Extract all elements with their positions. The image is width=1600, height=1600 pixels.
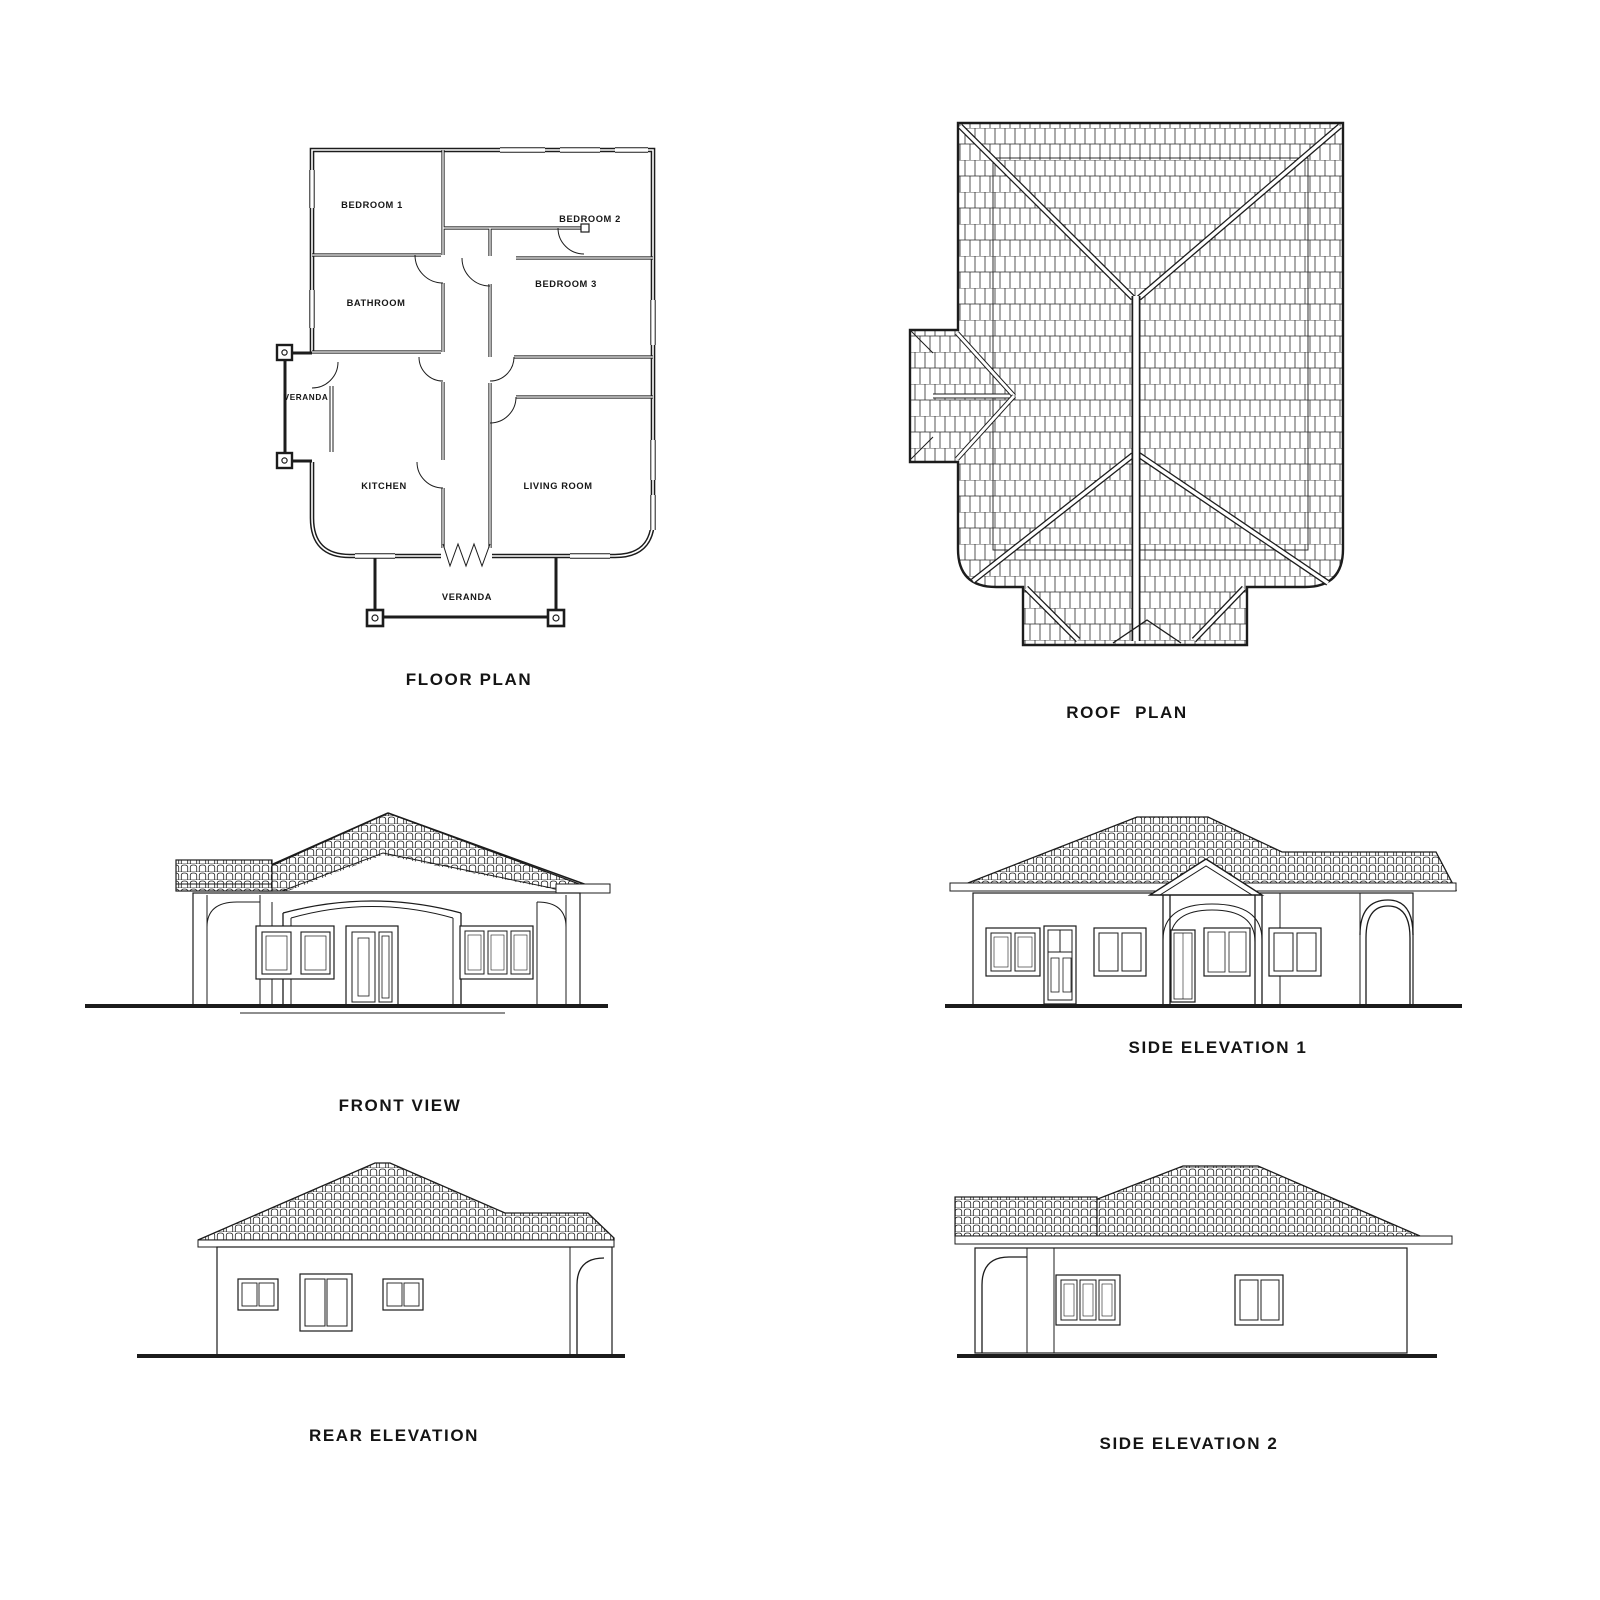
window-three-pane [1056,1275,1120,1325]
floor-plan-title: FLOOR PLAN [406,670,533,690]
roof-plan-title: ROOF PLAN [1066,703,1188,723]
right-fascia [556,884,610,893]
front-door [346,926,398,1005]
window-two-pane [1235,1275,1283,1325]
door-pivot-square [581,224,589,232]
floor-plan-panel: BEDROOM 1 BEDROOM 2 BATHROOM BEDROOM 3 V… [265,138,675,643]
front-roof [176,813,610,893]
porch-window [1204,928,1250,976]
front-view-panel [78,805,618,1020]
room-label-veranda-side: VERANDA [284,393,329,402]
side-wing-roof-band [176,860,272,891]
side-elevation-1-title: SIDE ELEVATION 1 [1129,1038,1308,1058]
fascia [198,1240,614,1247]
room-label-bedroom3: BEDROOM 3 [535,279,597,289]
room-label-kitchen: KITCHEN [361,481,407,491]
front-window-right [460,926,533,979]
room-label-living-room: LIVING ROOM [523,481,592,491]
roof-plan-drawing [895,110,1350,655]
veranda-post [367,610,383,626]
window [383,1279,423,1310]
window [1269,928,1321,976]
side-elevation-2-title: SIDE ELEVATION 2 [1100,1434,1279,1454]
window [1094,928,1146,976]
room-label-veranda-front: VERANDA [442,592,492,602]
room-label-bedroom1: BEDROOM 1 [341,200,403,210]
roof [955,1166,1452,1244]
room-label-bedroom2: BEDROOM 2 [559,214,621,224]
room-labels: BEDROOM 1 BEDROOM 2 BATHROOM BEDROOM 3 V… [284,200,621,602]
veranda-post [277,345,292,360]
veranda-post [277,453,292,468]
roof-tiled-surface [910,123,1343,645]
side-veranda [277,345,333,468]
architectural-drawing-sheet: BEDROOM 1 BEDROOM 2 BATHROOM BEDROOM 3 V… [0,0,1600,1600]
ground-line [85,1006,608,1013]
veranda-roof-band [955,1197,1097,1236]
fascia [955,1236,1452,1244]
roof [198,1163,614,1247]
hip-roof-tiles [198,1163,614,1240]
side-elevation-1-drawing [935,805,1470,1010]
roof-outline [910,123,1343,645]
side-elevation-2-panel [948,1150,1460,1360]
room-label-bathroom: BATHROOM [347,298,406,308]
side-elevation-1-panel [935,805,1470,1010]
side-elevation-2-drawing [948,1150,1460,1360]
rear-elevation-title: REAR ELEVATION [309,1426,479,1446]
front-view-drawing [78,805,618,1020]
front-view-title: FRONT VIEW [339,1096,462,1116]
roof-plan-panel [895,110,1350,655]
front-window-left [256,926,334,979]
floor-plan-drawing: BEDROOM 1 BEDROOM 2 BATHROOM BEDROOM 3 V… [265,138,675,643]
window-large [300,1274,352,1331]
rear-elevation-panel [128,1150,633,1362]
wall [975,1248,1407,1353]
window [238,1279,278,1310]
rear-elevation-drawing [128,1150,633,1362]
veranda-post [548,610,564,626]
